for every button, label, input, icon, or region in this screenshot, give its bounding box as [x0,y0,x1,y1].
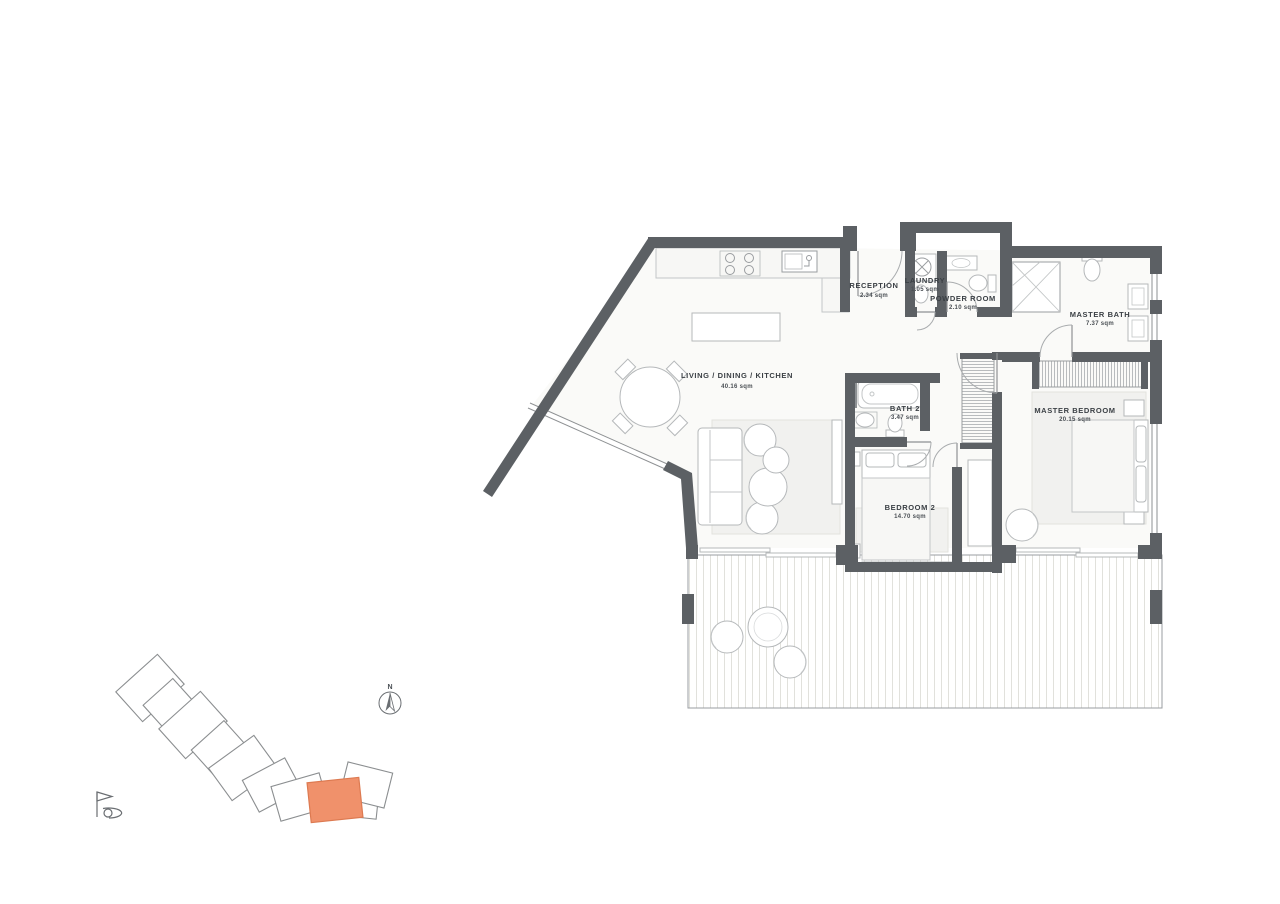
room-label-master-bath: MASTER BATH [1070,310,1131,319]
hall-closet [968,460,992,546]
compass-north-label: N [387,684,392,691]
room-area-living: 40.16 sqm [721,384,753,390]
room-label-bath2: BATH 2 [890,404,920,413]
room-label-bedroom2: BEDROOM 2 [885,503,936,512]
room-label-master-bedroom: MASTER BEDROOM [1034,406,1115,415]
room-area-bedroom2: 14.70 sqm [894,514,926,520]
wall [682,594,694,624]
toilet-icon [969,275,996,292]
washbasin-icon [1128,284,1148,309]
washbasin-icon [1128,316,1148,341]
room-label-powder: POWDER ROOM [930,294,996,303]
kitchen-counter [656,248,850,278]
room-area-reception: 2.34 sqm [860,293,888,299]
armchair [746,502,778,534]
terrace [682,555,1162,708]
dining-set [612,359,687,436]
kitchen-sink-icon [782,251,817,272]
room-area-master-bedroom: 20.15 sqm [1059,417,1091,423]
room-area-laundry: 1.05 sqm [911,287,939,293]
north-compass-icon: N [379,684,401,714]
room-label-reception: RECEPTION [849,281,898,290]
floor-plan-page: LIVING / DINING / KITCHEN 40.16 sqm RECE… [0,0,1280,904]
golf-flag-icon [97,792,122,818]
site-plan-highlighted-unit [307,777,363,822]
sofa [698,428,742,525]
shower [1012,262,1060,312]
tv-console [832,420,842,504]
room-area-bath2: 3.47 sqm [891,415,919,421]
sliding-door [700,548,770,552]
kitchen-island [692,313,780,341]
bed-master [1072,420,1148,512]
terrace-table [748,607,788,647]
sliding-door [766,553,836,557]
master-wardrobe [1032,359,1148,389]
terrace-chair [774,646,806,678]
wall [1150,590,1162,624]
sliding-door [1076,553,1138,557]
room-label-laundry: LAUNDRY [905,276,946,285]
sliding-door [1016,548,1080,552]
armchair [1006,509,1038,541]
site-plan [116,654,393,822]
dining-table [620,367,680,427]
terrace-chair [711,621,743,653]
room-area-powder: 2.10 sqm [949,305,977,311]
room-label-living: LIVING / DINING / KITCHEN [681,371,793,380]
nightstand [1124,400,1144,416]
room-area-master-bath: 7.37 sqm [1086,321,1114,327]
floor-plan-drawing: LIVING / DINING / KITCHEN 40.16 sqm RECE… [0,0,1280,904]
hall-wardrobe [960,353,994,449]
